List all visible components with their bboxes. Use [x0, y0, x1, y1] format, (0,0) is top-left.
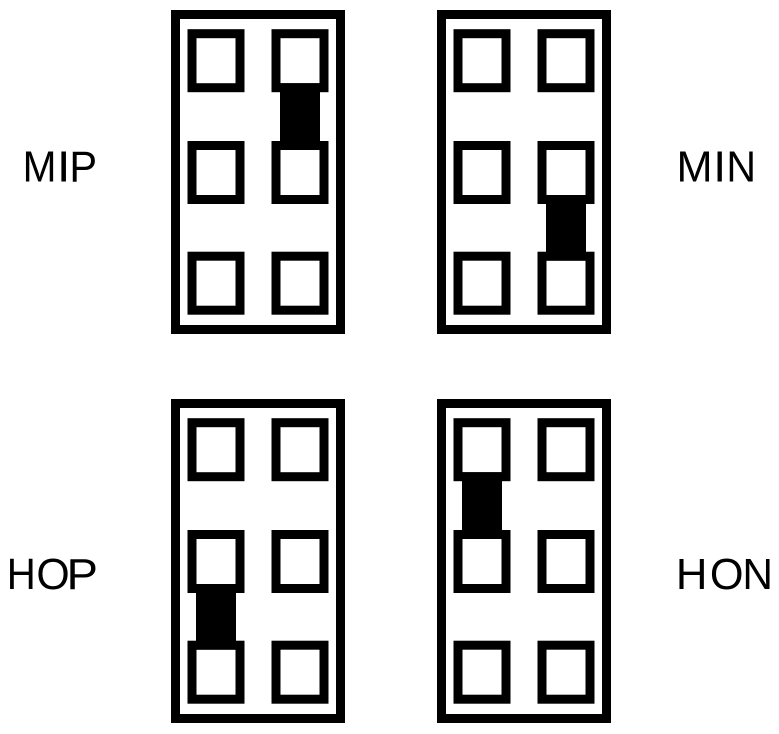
svg-text:H: H	[7, 549, 36, 598]
svg-text:I: I	[713, 142, 726, 191]
svg-text:H: H	[676, 550, 708, 599]
svg-text:P: P	[66, 550, 97, 599]
svg-text:P: P	[69, 143, 97, 192]
svg-text:O: O	[36, 551, 69, 599]
svg-text:N: N	[726, 143, 756, 191]
svg-text:M: M	[23, 142, 57, 191]
svg-text:N: N	[742, 550, 773, 599]
svg-text:M: M	[677, 144, 713, 192]
svg-text:O: O	[710, 551, 744, 599]
